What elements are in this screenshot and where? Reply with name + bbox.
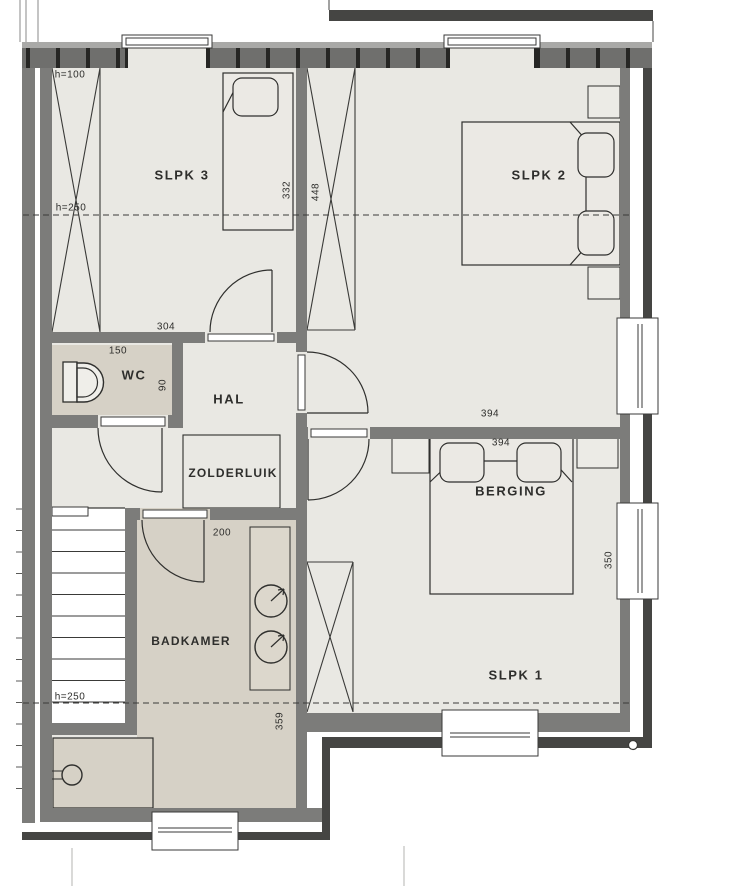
roof-window-gap	[125, 48, 209, 68]
toilet-tank	[63, 362, 77, 402]
wall-left-cavity	[35, 48, 40, 823]
room-label-slpk1: SLPK 1	[488, 668, 543, 683]
bed-slpk2	[462, 122, 620, 265]
dim-slpk3-depth: 332	[282, 181, 293, 199]
rainwater-pipe	[629, 741, 638, 750]
roof-window-jamb	[125, 48, 128, 68]
property-lines-top-left	[20, 0, 38, 42]
guide-lines-bottom	[72, 846, 404, 886]
wall-wc-bottom	[168, 415, 183, 428]
dim-wc-width: 150	[109, 346, 127, 357]
room-label-wc: WC	[122, 368, 147, 383]
room-label-hal: HAL	[213, 392, 245, 407]
dim-height-mid-top: h=250	[56, 203, 87, 214]
nightstand	[588, 86, 620, 118]
wall-step-outer	[322, 737, 330, 840]
door-frame	[143, 510, 207, 518]
dim-height-mid-bottom: h=250	[55, 692, 86, 703]
dim-wc-depth: 90	[158, 379, 169, 391]
wall-stairwell-bottom	[40, 723, 137, 735]
dim-slpk3-width: 304	[157, 322, 175, 333]
wall-badkamer-top	[210, 508, 307, 520]
floor-plan-canvas: SLPK 3 SLPK 2 SLPK 1 BERGING HAL WC ZOLD…	[0, 0, 733, 886]
wall-slpk2-slpk1	[296, 427, 308, 439]
dim-slpk1-width: 394	[492, 438, 510, 449]
dim-slpk2-depth: 448	[311, 183, 322, 201]
bed-slpk1	[430, 435, 573, 594]
room-label-badkamer: BADKAMER	[151, 634, 231, 648]
roof-window-jamb	[206, 48, 209, 68]
wall-top-strip	[22, 42, 652, 48]
ridge-bar-top-right	[329, 10, 653, 21]
pillow	[233, 78, 278, 116]
door-frame	[101, 417, 165, 426]
nightstand	[577, 438, 618, 468]
pillow	[517, 443, 561, 482]
window-badkamer-bottom	[152, 812, 238, 850]
wall-hal-slpk2-stub	[296, 413, 307, 427]
shower-tray	[53, 738, 153, 808]
door-frame	[298, 355, 305, 410]
roof-window-jamb	[534, 48, 537, 68]
roof-window	[122, 35, 212, 48]
dim-height-knee: h=100	[55, 70, 86, 81]
pillow	[578, 211, 614, 255]
pillow	[440, 443, 484, 482]
stair-nosing	[52, 507, 88, 516]
toilet	[63, 362, 104, 402]
facade-ticks-left	[16, 509, 22, 789]
wall-left-outer	[22, 48, 35, 823]
door-frame	[311, 429, 367, 437]
wall-left-inner	[40, 48, 52, 823]
roof-window	[444, 35, 540, 48]
dim-badkamer-depth: 359	[275, 712, 286, 730]
wall-stairwell	[125, 508, 137, 735]
wall-top-masonry	[22, 48, 652, 68]
dim-badkamer-door: 200	[213, 528, 231, 539]
dim-slpk1-depth: 350	[604, 551, 615, 569]
room-label-zolderluik: ZOLDERLUIK	[188, 466, 277, 480]
vanity-counter	[250, 527, 290, 690]
door-frame	[208, 334, 274, 341]
wall-wc-bottom	[52, 415, 98, 428]
wall-slpk3-slpk2	[296, 68, 307, 343]
dim-slpk2-width: 394	[481, 409, 499, 420]
floor-plan-drawing	[0, 0, 733, 886]
roof-window-gap	[447, 48, 537, 68]
pillow	[578, 133, 614, 177]
wall-badkamer-slpk1	[296, 439, 307, 822]
nightstand	[392, 438, 429, 473]
room-label-slpk3: SLPK 3	[154, 168, 209, 183]
nightstand	[588, 267, 620, 299]
room-label-slpk2: SLPK 2	[511, 168, 566, 183]
bed-slpk3	[223, 73, 293, 230]
room-label-berging: BERGING	[475, 484, 547, 499]
roof-window-jamb	[447, 48, 450, 68]
wall-hal-slpk2-stub	[296, 343, 307, 352]
